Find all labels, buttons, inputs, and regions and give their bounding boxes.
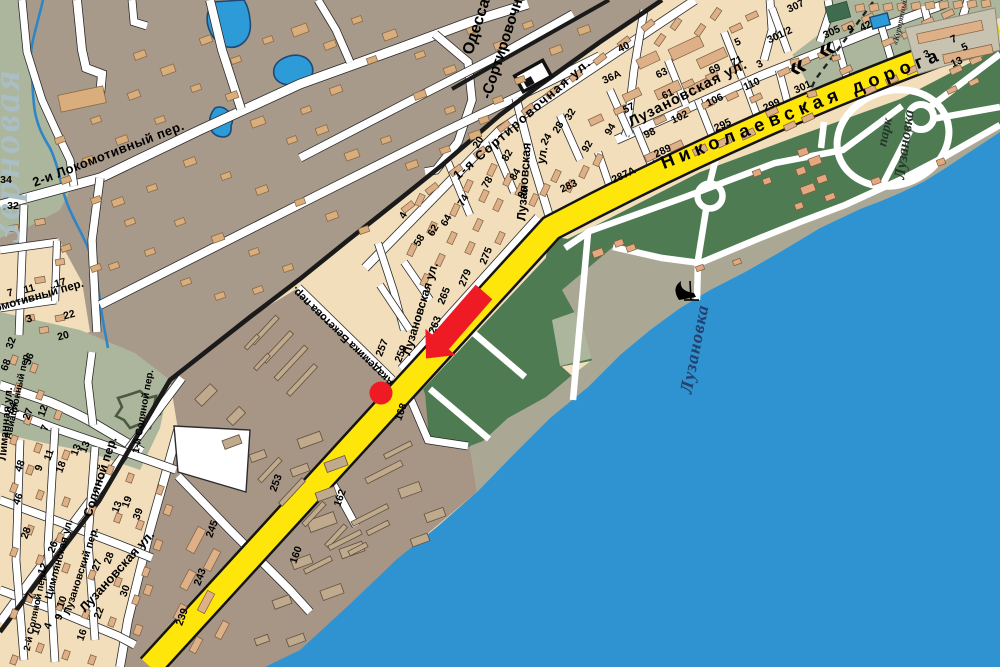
svg-text:ул.: ул.: [534, 145, 551, 165]
svg-text:32: 32: [7, 200, 19, 212]
svg-text:34: 34: [0, 174, 12, 186]
svg-text:Зерновая: Зерновая: [0, 68, 28, 244]
